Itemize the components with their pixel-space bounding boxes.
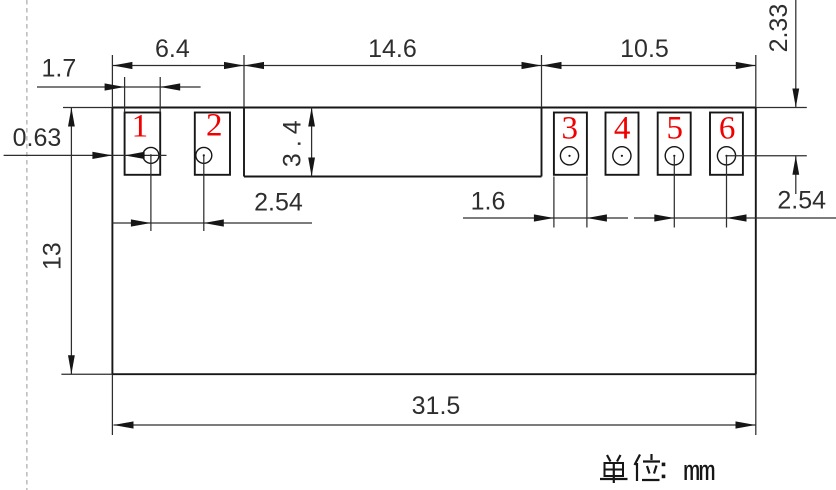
svg-text:2: 2: [206, 107, 223, 143]
svg-text:3: 3: [561, 111, 578, 147]
svg-text:1: 1: [132, 108, 149, 144]
svg-text:3.4: 3.4: [279, 114, 307, 167]
svg-text:2.54: 2.54: [777, 187, 826, 215]
svg-text:2.33: 2.33: [765, 4, 793, 53]
svg-text:14.6: 14.6: [368, 35, 417, 63]
svg-text:31.5: 31.5: [412, 392, 461, 420]
svg-text:13: 13: [39, 242, 67, 270]
svg-text:1.6: 1.6: [471, 188, 506, 216]
svg-text:2.54: 2.54: [254, 189, 303, 217]
svg-text:6.4: 6.4: [155, 35, 190, 63]
svg-text:10.5: 10.5: [620, 35, 669, 63]
svg-text:6: 6: [719, 111, 736, 147]
svg-text:1.7: 1.7: [42, 54, 77, 82]
svg-text:0.63: 0.63: [13, 124, 62, 152]
svg-text:5: 5: [667, 111, 684, 147]
svg-text:4: 4: [614, 111, 631, 147]
svg-text:mm: mm: [683, 456, 714, 489]
